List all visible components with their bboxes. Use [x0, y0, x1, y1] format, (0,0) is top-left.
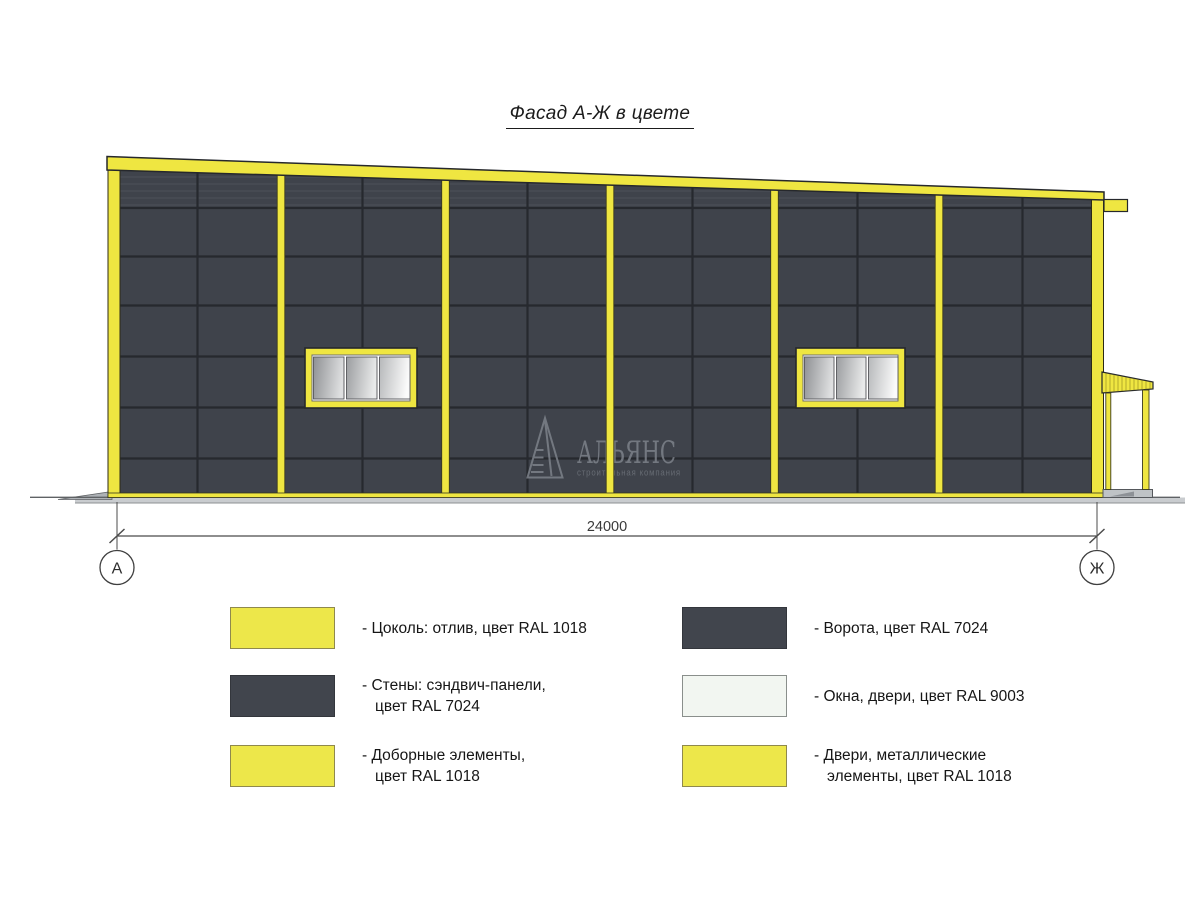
- watermark-company-name: АЛЬЯНС: [577, 435, 676, 471]
- facade-drawing-page: Фасад А-Ж в цвете: [0, 0, 1200, 900]
- legend-item-plinth: - Цоколь: отлив, цвет RAL 1018: [230, 607, 587, 649]
- window-pane: [347, 357, 378, 399]
- dimension-group: 24000: [110, 502, 1105, 550]
- window-pane: [869, 357, 899, 399]
- window-pane: [837, 357, 867, 399]
- legend-label: - Ворота, цвет RAL 7024: [814, 618, 988, 639]
- window-left: [305, 348, 417, 408]
- legend-label: - Стены: сэндвич-панели, цвет RAL 7024: [362, 675, 546, 717]
- legend-label: - Цоколь: отлив, цвет RAL 1018: [362, 618, 587, 639]
- roof-fascia-right-tab: [1104, 200, 1128, 212]
- legend-item-windows: - Окна, двери, цвет RAL 9003: [682, 675, 1025, 717]
- ground-band: [75, 498, 1185, 504]
- axis-label-left: А: [112, 561, 123, 578]
- window-pane: [314, 357, 345, 399]
- legend-item-gates: - Ворота, цвет RAL 7024: [682, 607, 988, 649]
- dimension-label: 24000: [587, 519, 627, 535]
- legend-item-doors: - Двери, металлические элементы, цвет RA…: [682, 745, 1012, 787]
- base-flashing-strip: [108, 493, 1104, 498]
- porch-post-left: [1106, 393, 1111, 490]
- right-corner-column: [1092, 193, 1104, 498]
- legend-label: - Двери, металлические элементы, цвет RA…: [814, 745, 1012, 787]
- axis-label-right: Ж: [1090, 561, 1105, 578]
- legend-item-walls: - Стены: сэндвич-панели, цвет RAL 7024: [230, 675, 546, 717]
- left-corner-column: [108, 158, 120, 498]
- legend-label: - Доборные элементы, цвет RAL 1018: [362, 745, 525, 787]
- legend-swatch-ral1018: [682, 745, 787, 787]
- legend-swatch-ral1018: [230, 607, 335, 649]
- legend-item-trim: - Доборные элементы, цвет RAL 1018: [230, 745, 525, 787]
- window-right: [796, 348, 905, 408]
- legend-label: - Окна, двери, цвет RAL 9003: [814, 686, 1025, 707]
- axis-markers: А Ж: [100, 551, 1114, 585]
- window-pane: [380, 357, 411, 399]
- legend-swatch-ral7024: [682, 607, 787, 649]
- porch-post-right: [1143, 390, 1150, 490]
- porch: [1102, 370, 1153, 498]
- window-pane: [805, 357, 835, 399]
- watermark-company-subtitle: строительная компания: [577, 468, 681, 479]
- legend-swatch-ral9003: [682, 675, 787, 717]
- legend-swatch-ral1018: [230, 745, 335, 787]
- facade-elevation-canvas: АЛЬЯНС строительная компания: [0, 0, 1200, 900]
- legend-swatch-ral7024: [230, 675, 335, 717]
- ground-wedge-left: [58, 492, 112, 500]
